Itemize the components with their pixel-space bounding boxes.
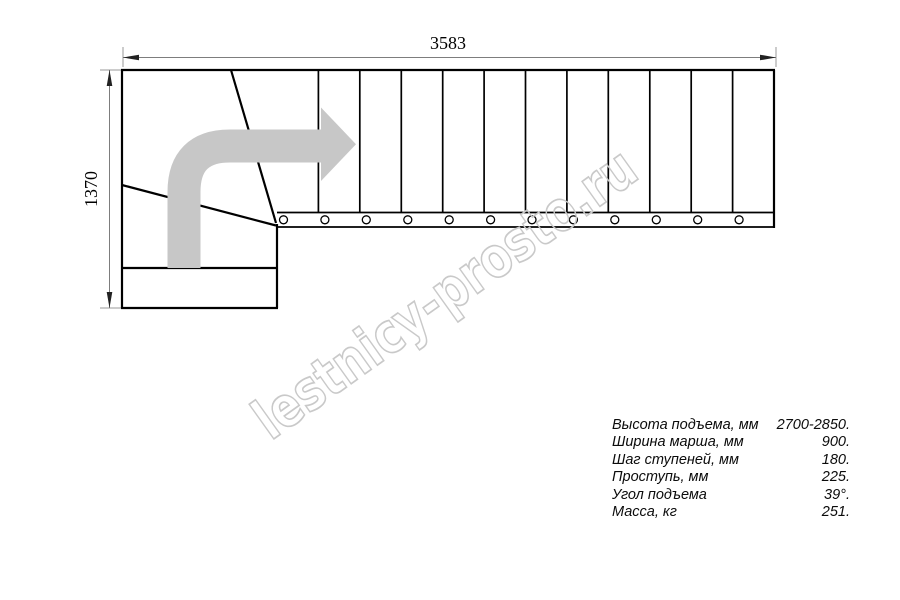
stair-plan-page: 3583 1370 bbox=[0, 0, 900, 600]
tread-post-marker bbox=[652, 216, 660, 224]
arrowhead-left-icon bbox=[123, 55, 139, 61]
spec-value: 225. bbox=[822, 469, 850, 486]
spec-value: 180. bbox=[822, 452, 850, 469]
spec-label: Угол подъема bbox=[612, 487, 707, 504]
spec-label: Ширина марша, мм bbox=[612, 434, 744, 451]
spec-row: Высота подъема, мм2700-2850. bbox=[612, 417, 850, 434]
spec-value: 900. bbox=[822, 434, 850, 451]
tread-post-marker bbox=[362, 216, 370, 224]
spec-row: Угол подъема39°. bbox=[612, 487, 850, 504]
tread-post-marker bbox=[321, 216, 329, 224]
arrowhead-up-icon bbox=[107, 70, 113, 86]
direction-arrow bbox=[184, 108, 356, 269]
arrowhead-right-icon bbox=[760, 55, 776, 61]
tread-post-marker bbox=[611, 216, 619, 224]
tread-post-marker bbox=[735, 216, 743, 224]
spec-row: Шаг ступеней, мм180. bbox=[612, 452, 850, 469]
tread-post-marker bbox=[404, 216, 412, 224]
width-dimension-label: 3583 bbox=[430, 33, 466, 53]
arrowhead-down-icon bbox=[107, 292, 113, 308]
spec-row: Масса, кг251. bbox=[612, 504, 850, 521]
spec-label: Высота подъема, мм bbox=[612, 417, 759, 434]
height-dimension-label: 1370 bbox=[81, 171, 101, 207]
spec-label: Шаг ступеней, мм bbox=[612, 452, 739, 469]
spec-value: 39°. bbox=[824, 487, 850, 504]
step-lines bbox=[318, 70, 732, 213]
spec-label: Масса, кг bbox=[612, 504, 677, 521]
spec-row: Ширина марша, мм900. bbox=[612, 434, 850, 451]
tread-post-marker bbox=[694, 216, 702, 224]
height-dimension: 1370 bbox=[81, 70, 121, 308]
direction-arrow-head-icon bbox=[321, 108, 356, 182]
watermark: lestnicy-prosto.ru bbox=[241, 135, 649, 452]
spec-row: Проступь, мм225. bbox=[612, 469, 850, 486]
spec-value: 251. bbox=[822, 504, 850, 521]
width-dimension: 3583 bbox=[123, 33, 776, 67]
tread-post-marker bbox=[280, 216, 288, 224]
tread-post-marker bbox=[445, 216, 453, 224]
specs-list: Высота подъема, мм2700-2850.Ширина марша… bbox=[612, 417, 850, 521]
spec-label: Проступь, мм bbox=[612, 469, 708, 486]
spec-value: 2700-2850. bbox=[777, 417, 850, 434]
